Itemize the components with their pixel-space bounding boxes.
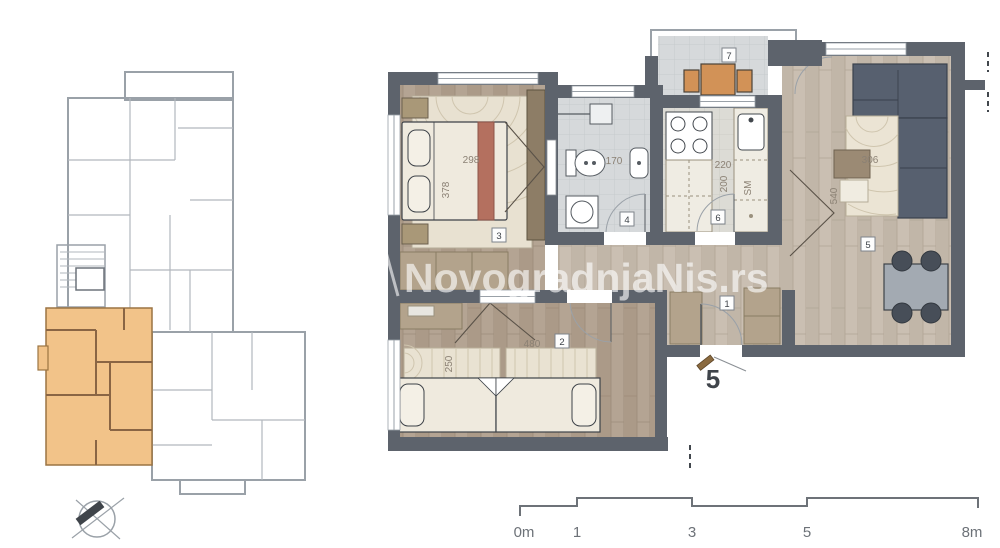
building-overview xyxy=(38,72,305,539)
pillow-right xyxy=(572,384,596,426)
window-bathroom-top xyxy=(572,86,634,97)
pillow-1 xyxy=(408,130,430,166)
room-label-bedroom3: 3 xyxy=(496,231,501,242)
window-kitchen-terrace xyxy=(700,96,755,107)
watermark-text: NovogradnjaNis.rs xyxy=(404,255,769,301)
dim-bedroom2-width: 480 xyxy=(524,339,541,350)
entrance-marker: 5 xyxy=(697,355,746,394)
room-label-bathroom: 4 xyxy=(624,215,629,226)
nightstand-bottom xyxy=(402,224,428,244)
terrace-chair-right xyxy=(737,70,752,92)
window-bedroom3-left xyxy=(388,115,400,215)
bed-blanket-stripe xyxy=(478,122,494,220)
stairwell xyxy=(57,245,105,307)
dining-chair xyxy=(892,251,912,271)
dining-chair xyxy=(921,303,941,323)
apartment-number: 5 xyxy=(706,364,720,394)
room-label-terrace: 7 xyxy=(726,51,731,62)
sofa-chaise xyxy=(853,64,947,118)
room-label-bedroom2: 2 xyxy=(559,337,564,348)
scale-label-3: 3 xyxy=(688,524,696,541)
scale-label-8: 8m xyxy=(962,524,983,541)
shower-head xyxy=(590,104,612,124)
highlighted-apartment xyxy=(38,308,152,465)
floorplan-page: 1 2 3 4 5 6 7 298 378 170 220 200 SM 540… xyxy=(0,0,1000,548)
elevator xyxy=(76,268,104,290)
label-dishwasher: SM xyxy=(743,181,754,196)
scale-label-5: 5 xyxy=(803,524,811,541)
scale-label-1: 1 xyxy=(573,524,581,541)
terrace-chair-left xyxy=(684,70,699,92)
dim-bedroom3-depth: 378 xyxy=(441,181,452,198)
scale-bar-line xyxy=(520,498,978,516)
dim-living-depth: 540 xyxy=(829,187,840,204)
nightstand-top xyxy=(402,98,428,118)
room-label-kitchen: 6 xyxy=(715,213,720,224)
wardrobe-mirror xyxy=(408,306,434,316)
window-bedroom2-left xyxy=(388,340,400,430)
mirror-strip xyxy=(547,140,556,195)
dining-chair xyxy=(921,251,941,271)
dim-bathroom-width: 170 xyxy=(606,156,623,167)
dim-bedroom3-width: 298 xyxy=(463,155,480,166)
scale-bar: 0m 1 3 5 8m xyxy=(514,498,983,541)
dining-chair xyxy=(892,303,912,323)
dim-living-rug: 306 xyxy=(862,155,879,166)
window-living-top xyxy=(826,43,906,55)
pillow-left xyxy=(400,384,424,426)
terrace-table xyxy=(701,64,735,95)
watermark: NovogradnjaNis.rs xyxy=(360,252,769,301)
dim-kitchen-depth: 200 xyxy=(719,175,730,192)
pillow-2 xyxy=(408,176,430,212)
dim-kitchen-width: 220 xyxy=(715,160,732,171)
wc-bowl xyxy=(575,150,605,176)
compass-icon xyxy=(72,498,124,539)
dining-table xyxy=(884,264,948,310)
room-label-living: 5 xyxy=(865,240,870,251)
scale-label-0: 0m xyxy=(514,524,535,541)
floorplan-canvas: 1 2 3 4 5 6 7 298 378 170 220 200 SM 540… xyxy=(0,0,1000,548)
dim-bedroom2-rug: 250 xyxy=(444,355,455,372)
pouf xyxy=(840,180,868,202)
main-plan: 1 2 3 4 5 6 7 298 378 170 220 200 SM 540… xyxy=(388,30,988,468)
window-bedroom3-top xyxy=(438,73,538,84)
